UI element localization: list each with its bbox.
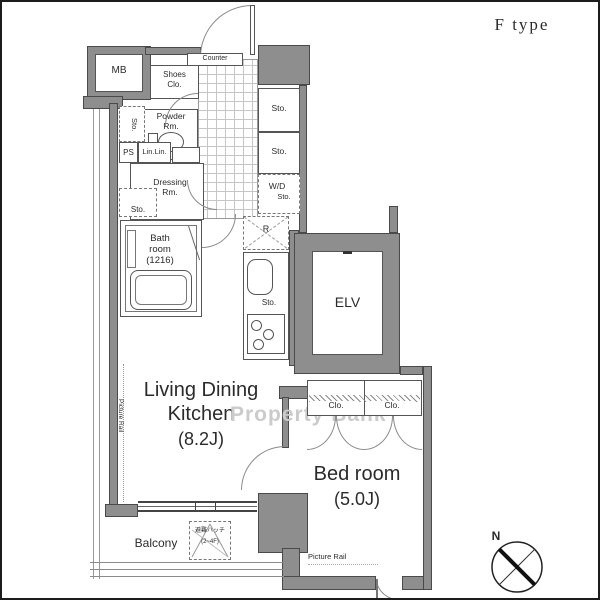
- closet-left-label: Clo.: [314, 401, 358, 411]
- closet-door-swing: [336, 416, 364, 450]
- pipe-space-label: PS: [119, 148, 138, 157]
- wall-hall-right: [299, 85, 307, 233]
- storage-left-vertical-label: Sto.: [124, 110, 138, 140]
- refrigerator-label: R: [243, 224, 289, 234]
- entrance-door-swing: [200, 5, 252, 57]
- bedroom-exterior-door-leaf: [376, 579, 378, 600]
- closet-door-swing: [364, 416, 393, 450]
- evacuation-hatch-label-1: 避難ハッチ: [188, 528, 232, 535]
- closet-door-swing: [307, 416, 336, 450]
- stove-burner: [253, 339, 264, 350]
- linen-linen-label: Lin.Lin.: [138, 148, 171, 157]
- stove-burner: [251, 320, 262, 331]
- closet-door-swing: [393, 416, 422, 450]
- picture-rail-bottom-label: Picture Rail: [308, 553, 372, 562]
- counter-label: Counter: [187, 55, 243, 63]
- closet-right-label: Clo.: [370, 401, 414, 411]
- picture-rail-left-label: Picture Rail: [114, 384, 124, 448]
- bath-counter: [127, 230, 136, 268]
- ldk-label-1: Living Dining: [122, 378, 280, 402]
- bath-label-3: (1216): [128, 256, 192, 267]
- floor-plan: F type MB ELV Counter Shoes Clo. Powder …: [0, 0, 600, 600]
- shoes-closet-label-2: Clo.: [150, 80, 199, 89]
- bedroom-door-swing: [241, 446, 285, 490]
- balcony-window-mid-line: [138, 506, 257, 507]
- kitchen-sink: [247, 259, 273, 295]
- wall-top-right-chunk: [258, 45, 310, 85]
- wall-bedroom-right: [423, 366, 432, 590]
- balcony-rail-line: [90, 576, 284, 577]
- hall-ldk-door-swing: [202, 214, 236, 248]
- wall-balcony-left-block: [105, 504, 138, 517]
- storage-small-label: Sto.: [120, 205, 156, 214]
- wall-left: [109, 103, 118, 513]
- linen-shelf: [172, 147, 200, 163]
- storage-a-label: Sto.: [258, 104, 300, 114]
- storage-b-label: Sto.: [258, 147, 300, 157]
- balcony-label: Balcony: [120, 537, 192, 551]
- exterior-line: [93, 107, 94, 579]
- shoes-closet-label-1: Shoes: [150, 70, 199, 79]
- mb-label: MB: [95, 65, 143, 77]
- entrance-door-leaf: [250, 5, 255, 55]
- picture-rail-line-bottom: [308, 564, 378, 565]
- balcony-window-tick: [215, 502, 216, 511]
- stove-burner: [263, 329, 274, 340]
- evacuation-hatch-label-2: (2~4F): [188, 539, 232, 546]
- balcony-window-tick: [195, 502, 196, 511]
- washer-dryer-label: W/D: [261, 182, 293, 192]
- elevator-label: ELV: [312, 294, 383, 310]
- plan-type-title: F type: [480, 15, 564, 35]
- wall-bottom-left-seg: [282, 576, 376, 590]
- washer-dryer-sto-label: Sto.: [268, 193, 300, 202]
- elevator-door-mark: [343, 251, 352, 254]
- exterior-line: [99, 107, 100, 579]
- balcony-rail-line: [90, 562, 284, 563]
- kitchen-sto-label: Sto.: [254, 298, 284, 307]
- bedroom-exterior-door-swing: [376, 579, 402, 600]
- bedroom-label-2: (5.0J): [294, 488, 420, 510]
- wall-elv-stub: [389, 206, 398, 233]
- bedroom-label-1: Bed room: [294, 462, 420, 486]
- compass-north-label: N: [488, 530, 504, 544]
- wall-elv-bedroom-join: [400, 366, 423, 375]
- bathtub-inner: [135, 275, 187, 305]
- balcony-rail-line: [90, 569, 284, 570]
- ldk-label-3: (8.2J): [122, 428, 280, 450]
